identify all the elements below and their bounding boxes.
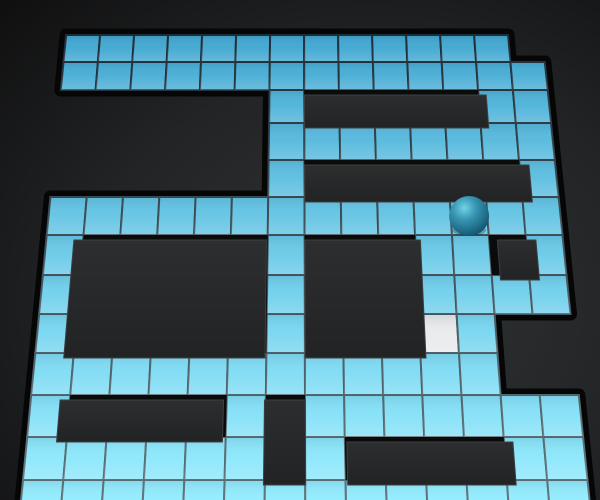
floor-tile	[457, 314, 498, 353]
floor-tile	[142, 480, 185, 500]
floor-tile	[304, 62, 339, 90]
floor-tile	[452, 235, 492, 275]
floor-tile	[341, 197, 379, 235]
floor-tile	[266, 314, 305, 353]
floor-tile	[420, 353, 461, 395]
floor-tile	[267, 275, 305, 314]
floor-tile	[31, 353, 74, 395]
game-stage	[0, 0, 600, 500]
floor-tile	[372, 35, 407, 62]
floor-tile	[407, 62, 443, 90]
floor-tile	[110, 353, 151, 395]
floor-tile	[101, 480, 144, 500]
floor-tile	[513, 90, 551, 123]
floor-tile	[375, 123, 412, 160]
floor-tile	[543, 437, 587, 480]
floor-tile	[305, 197, 342, 235]
floor-tile	[225, 437, 266, 480]
floor-tile	[442, 62, 478, 90]
floor-tile	[231, 197, 268, 235]
floor-tile	[338, 35, 373, 62]
floor-tile	[201, 35, 236, 62]
floor-tile	[270, 35, 304, 62]
wall-block	[305, 165, 533, 202]
floor-tile	[61, 62, 98, 90]
floor-tile	[440, 35, 476, 62]
floor-tile	[19, 480, 64, 500]
floor-tile	[184, 437, 225, 480]
floor-tile	[413, 197, 452, 235]
floor-tile	[144, 437, 186, 480]
floor-tile	[462, 395, 504, 437]
floor-tile	[516, 123, 555, 160]
wall-block	[64, 240, 267, 358]
floor-tile	[304, 123, 340, 160]
floor-tile	[304, 35, 338, 62]
floor-tile	[529, 275, 570, 314]
floor-tile	[344, 395, 384, 437]
ball-group	[449, 196, 489, 236]
floor-tile	[96, 62, 133, 90]
floor-tile	[476, 62, 513, 90]
maze-scene	[0, 0, 600, 500]
floor-tile	[501, 395, 544, 437]
floor-tile	[510, 62, 547, 90]
floor-tile	[104, 437, 147, 480]
floor-tile	[165, 62, 201, 90]
floor-tile	[540, 395, 583, 437]
floor-tile	[84, 197, 123, 235]
floor-tile	[492, 275, 533, 314]
floor-tile	[459, 353, 501, 395]
floor-tile	[547, 480, 592, 500]
floor-tile	[522, 197, 562, 235]
floor-tile	[481, 123, 520, 160]
wall-block	[305, 240, 426, 358]
floor-tile	[98, 35, 134, 62]
floor-tile	[377, 197, 415, 235]
floor-tile	[200, 62, 236, 90]
floor-tile	[270, 62, 305, 90]
floor-tile	[268, 197, 305, 235]
player-ball[interactable]	[449, 196, 489, 236]
floor-tile	[269, 123, 305, 160]
floor-tile	[47, 197, 87, 235]
floor-tile	[223, 480, 265, 500]
floor-tile	[268, 160, 304, 197]
floor-tile	[474, 35, 510, 62]
floor-tile	[167, 35, 202, 62]
floor-tile	[406, 35, 442, 62]
floor-tile	[486, 197, 526, 235]
floor-tile	[422, 395, 464, 437]
floor-tile	[64, 35, 101, 62]
floor-tile	[305, 437, 346, 480]
floor-tile	[183, 480, 225, 500]
floor-tile	[70, 353, 112, 395]
floor-tile	[266, 353, 305, 395]
floor-tile	[305, 395, 345, 437]
floor-tile	[235, 35, 270, 62]
wall-block	[497, 240, 539, 280]
floor-tile	[120, 197, 159, 235]
floor-tile	[227, 353, 267, 395]
floor-tile	[445, 123, 483, 160]
floor-tile	[339, 62, 374, 90]
floor-tile	[305, 353, 344, 395]
floor-tile	[373, 62, 409, 90]
floor-tile	[340, 123, 376, 160]
floor-tile	[410, 123, 447, 160]
wall-block	[305, 95, 489, 128]
wall-block	[263, 400, 305, 485]
floor-tile	[23, 437, 67, 480]
floor-tile	[383, 395, 424, 437]
floor-tile	[382, 353, 422, 395]
floor-tile	[157, 197, 195, 235]
floor-tile	[267, 235, 304, 275]
floor-tile	[130, 62, 166, 90]
floor-tile	[63, 437, 106, 480]
floor-tile	[149, 353, 190, 395]
floor-tile	[269, 90, 304, 123]
floor-tile	[188, 353, 228, 395]
floor-tile	[305, 480, 346, 500]
floor-tile	[343, 353, 383, 395]
floor-tile	[235, 62, 270, 90]
floor-tile	[194, 197, 232, 235]
floor-tile	[132, 35, 168, 62]
wall-block	[57, 400, 224, 442]
floor-tile	[454, 275, 494, 314]
floor-tile	[60, 480, 104, 500]
wall-block	[347, 442, 516, 485]
floor-tile	[226, 395, 266, 437]
